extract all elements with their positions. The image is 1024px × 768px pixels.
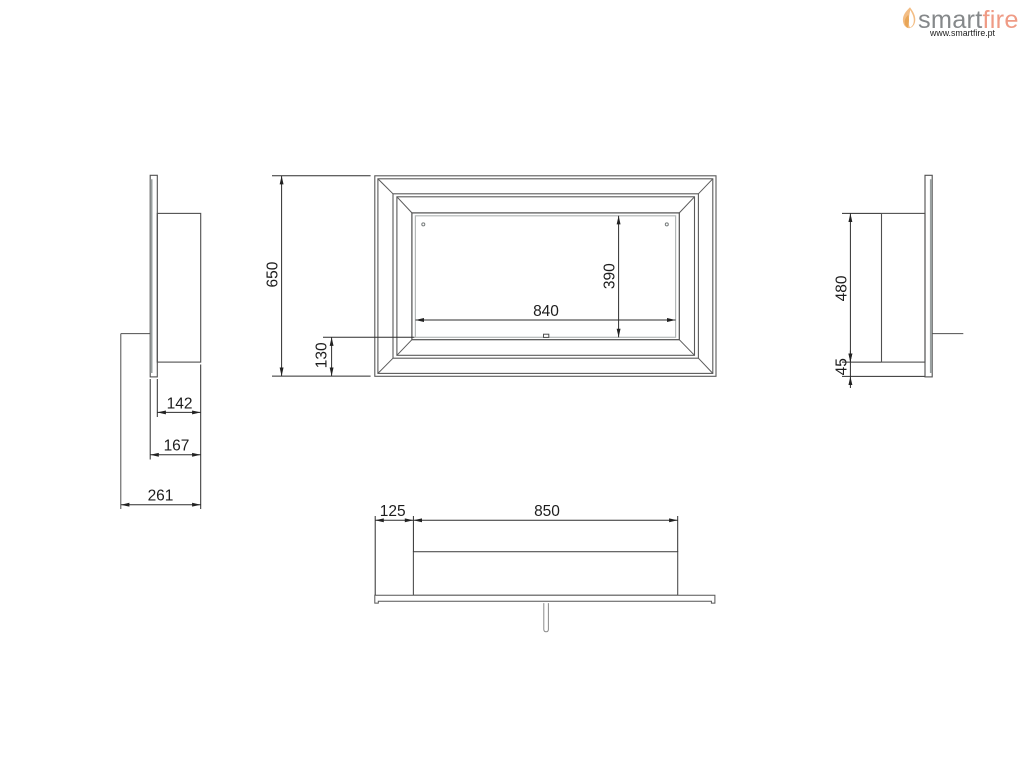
svg-text:261: 261 [148,487,174,504]
svg-text:850: 850 [534,503,560,520]
svg-text:390: 390 [601,263,618,289]
svg-text:45: 45 [834,358,851,375]
svg-text:www.smartfire.pt: www.smartfire.pt [929,28,996,38]
svg-text:840: 840 [533,303,559,320]
svg-text:650: 650 [264,261,281,287]
svg-text:125: 125 [380,503,406,520]
svg-text:142: 142 [167,395,193,412]
svg-text:130: 130 [313,342,330,368]
svg-text:480: 480 [834,275,851,301]
svg-text:167: 167 [164,438,190,455]
